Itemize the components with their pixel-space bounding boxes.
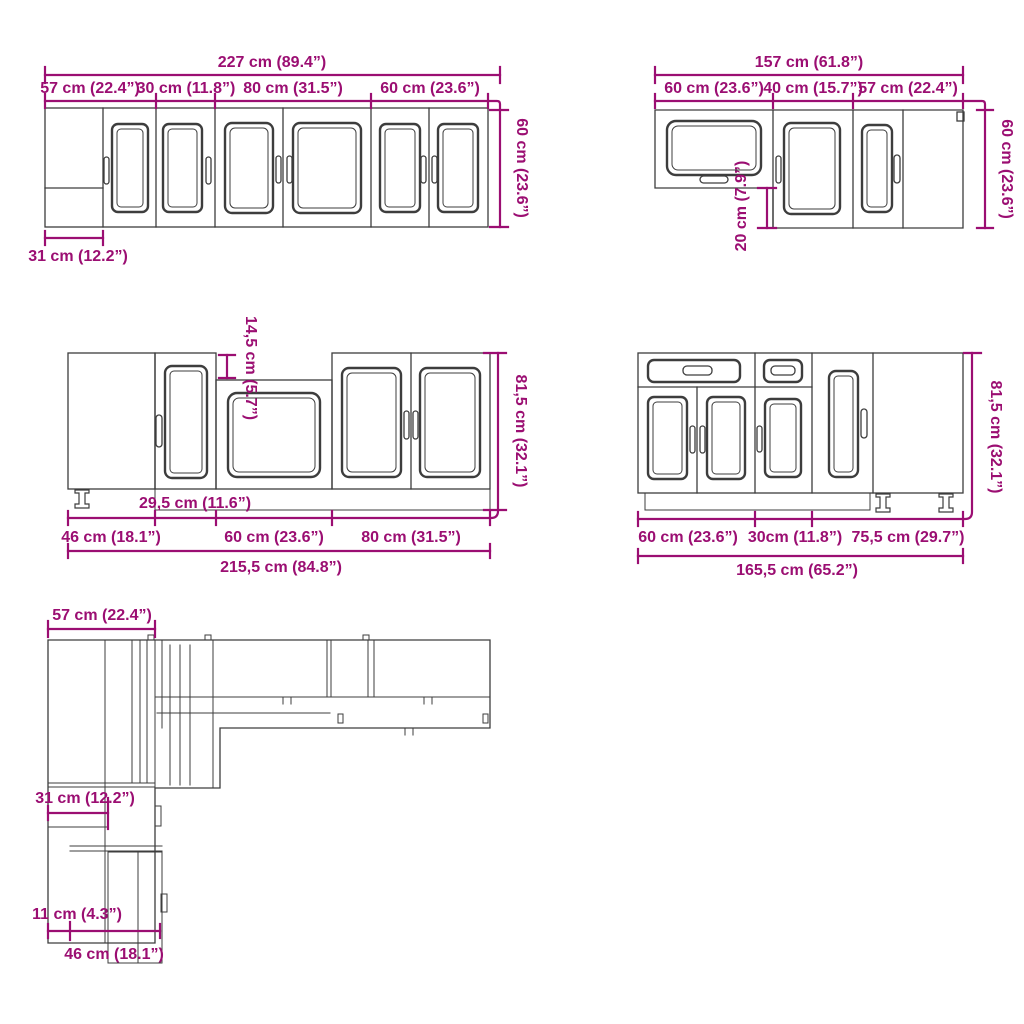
base-row-seg3-label: 80 cm (31.5”) (361, 529, 461, 546)
wall-row-segment-dimension: 57 cm (22.4”) 30 cm (11.8”) 80 cm (31.5”… (40, 80, 530, 227)
base-row-total-label: 215,5 cm (84.8”) (220, 559, 342, 576)
base-row-gap-label: 14,5 cm (5.7”) (242, 316, 259, 420)
base-row-gap-dimension: 14,5 cm (5.7”) (219, 316, 259, 420)
base-corner-height-dimension: 81,5 cm (32.1”) (964, 353, 1004, 519)
corner-base-cabinet-diagram: 60 cm (23.6”) 30cm (11.8”) 75,5 cm (29.7… (638, 353, 1004, 579)
dimension-drawing: 227 cm (89.4”) 57 cm (22.4”) 30 cm (11.8… (0, 0, 1024, 1024)
wall-corner-seg3-label: 57 cm (22.4”) (858, 80, 958, 97)
plan-depth-label: 57 cm (22.4”) (52, 607, 152, 624)
kitchen-cabinet-dimension-sheet: 227 cm (89.4”) 57 cm (22.4”) 30 cm (11.8… (0, 0, 1024, 1024)
base-corner-drawer-fronts (648, 360, 802, 382)
base-corner-height-label: 81,5 cm (32.1”) (987, 381, 1004, 494)
l-shaped-plan-diagram: 57 cm (22.4”) 31 cm (12.2”) 11 cm (4.3”)… (32, 607, 490, 963)
wall-row-door-handles (104, 156, 437, 184)
base-row-door-handles (156, 411, 418, 447)
wall-corner-door-handles (700, 155, 900, 183)
wall-row-seg1-label: 57 cm (22.4”) (40, 80, 140, 97)
base-row-total-dimension: 215,5 cm (84.8”) (68, 544, 490, 576)
wall-corner-seg1-label: 60 cm (23.6”) (664, 80, 764, 97)
base-corner-seg3-label: 75,5 cm (29.7”) (852, 529, 965, 546)
wall-row-seg3-label: 80 cm (31.5”) (243, 80, 343, 97)
base-row-height-dimension: 81,5 cm (32.1”) (484, 353, 529, 518)
wall-corner-drop-label: 20 cm (7.9”) (733, 161, 750, 252)
plan-depth-dimension: 57 cm (22.4”) (48, 607, 155, 637)
wall-row-blind-label: 31 cm (12.2”) (28, 248, 128, 265)
base-corner-total-label: 165,5 cm (65.2”) (736, 562, 858, 579)
wall-row-seg2-label: 30 cm (11.8”) (137, 80, 236, 97)
plan-detail-marks (148, 635, 488, 912)
wall-row-seg4-label: 60 cm (23.6”) (380, 80, 480, 97)
corner-wall-cabinet-diagram: 157 cm (61.8”) 60 cm (23.6”) 40 cm (15.7… (655, 54, 1015, 251)
base-corner-seg1-label: 60 cm (23.6”) (638, 529, 738, 546)
plan-11cm-label: 11 cm (4.3”) (32, 906, 122, 923)
wall-row-total-width-dimension: 227 cm (89.4”) (45, 54, 500, 83)
wall-cabinet-row-diagram: 227 cm (89.4”) 57 cm (22.4”) 30 cm (11.8… (28, 54, 530, 265)
base-row-seg1-label: 46 cm (18.1”) (61, 529, 161, 546)
base-row-height-label: 81,5 cm (32.1”) (512, 375, 529, 488)
wall-row-total-label: 227 cm (89.4”) (218, 54, 327, 71)
wall-corner-total-label: 157 cm (61.8”) (755, 54, 864, 71)
plan-11cm-46cm-dimension: 11 cm (4.3”) 46 cm (18.1”) (32, 906, 164, 963)
wall-row-height-label: 60 cm (23.6”) (513, 118, 530, 218)
base-row-seg2-label: 60 cm (23.6”) (224, 529, 324, 546)
base-row-cabinet-outline (68, 353, 490, 510)
base-corner-segment-dimension: 60 cm (23.6”) 30cm (11.8”) 75,5 cm (29.7… (638, 512, 964, 546)
plan-31cm-dimension: 31 cm (12.2”) (35, 790, 135, 829)
base-row-door-panels (165, 366, 480, 478)
wall-corner-seg2-label: 40 cm (15.7”) (763, 80, 863, 97)
base-corner-seg2-label: 30cm (11.8”) (748, 529, 842, 546)
plan-31cm-label: 31 cm (12.2”) (35, 790, 135, 807)
base-row-inner-label: 29,5 cm (11.6”) (139, 495, 251, 512)
base-corner-door-handles (690, 409, 867, 453)
wall-corner-height-label: 60 cm (23.6”) (998, 119, 1015, 219)
base-cabinet-row-diagram: 14,5 cm (5.7”) 81,5 cm (32.1”) 29,5 cm (… (61, 316, 529, 576)
base-corner-total-dimension: 165,5 cm (65.2”) (638, 549, 963, 579)
wall-row-blind-dimension: 31 cm (12.2”) (28, 231, 128, 265)
base-row-segment-dimension: 29,5 cm (11.6”) 46 cm (18.1”) 60 cm (23.… (61, 495, 490, 546)
wall-corner-total-width-dimension: 157 cm (61.8”) (655, 54, 963, 83)
plan-46cm-label: 46 cm (18.1”) (64, 946, 164, 963)
